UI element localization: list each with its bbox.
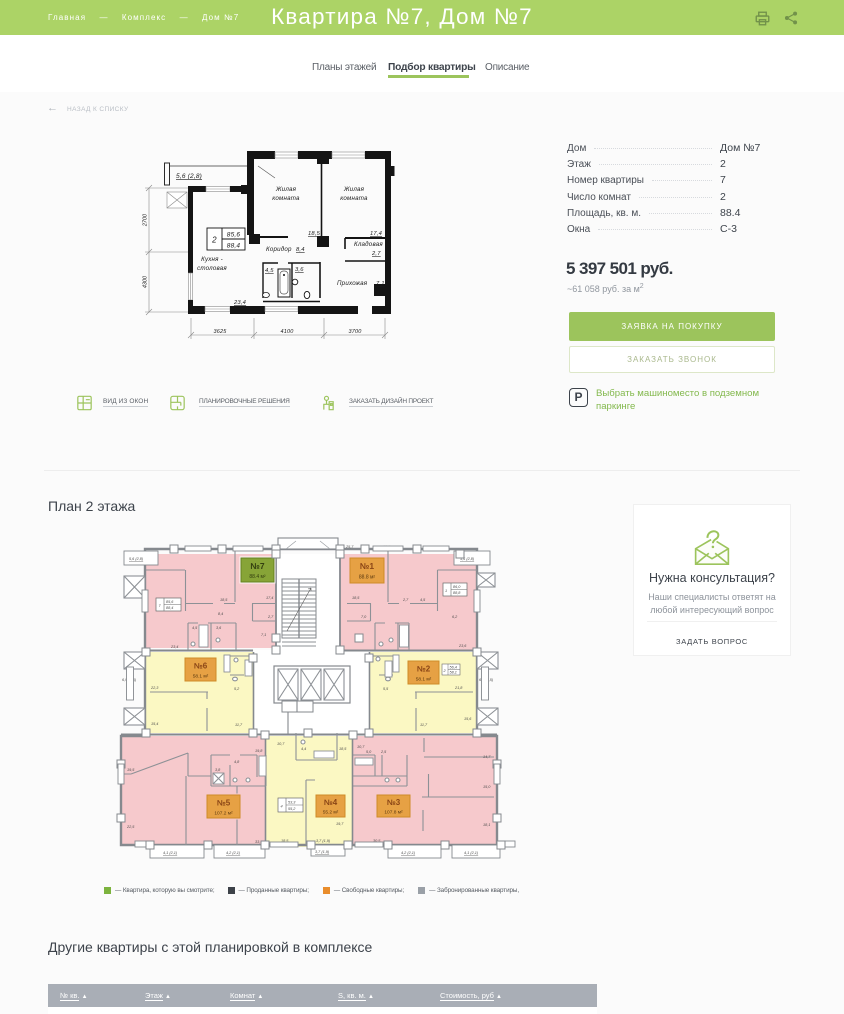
svg-text:2,7: 2,7 [267,615,274,619]
svg-text:3,6: 3,6 [216,626,222,630]
svg-text:88,8: 88,8 [453,591,461,595]
svg-text:25,7: 25,7 [345,545,354,549]
svg-text:Жилая: Жилая [275,186,297,193]
svg-text:7,0: 7,0 [361,615,367,619]
svg-text:86,0: 86,0 [453,585,461,589]
svg-text:58,1: 58,1 [450,671,457,675]
svg-text:55.2 м²: 55.2 м² [323,810,339,816]
svg-text:4,1 (2,1): 4,1 (2,1) [163,851,178,855]
svg-text:18,1: 18,1 [483,823,490,827]
svg-text:5,0: 5,0 [366,750,372,754]
svg-text:88.4 м²: 88.4 м² [249,574,266,580]
svg-text:2700: 2700 [143,213,149,227]
svg-text:№4: №4 [324,798,338,807]
svg-text:107.2 м²: 107.2 м² [214,811,233,817]
svg-text:5,6 (2,8): 5,6 (2,8) [129,557,144,561]
svg-text:4,2 (2,1): 4,2 (2,1) [401,851,416,855]
svg-text:11,7: 11,7 [420,723,428,727]
svg-text:4,2 (2,1): 4,2 (2,1) [226,851,241,855]
svg-text:№2: №2 [417,665,431,674]
svg-text:88,4: 88,4 [227,243,241,250]
svg-text:№6: №6 [194,662,208,671]
svg-text:11,7: 11,7 [235,723,243,727]
svg-text:№3: №3 [387,798,401,807]
svg-text:столовая: столовая [197,265,227,272]
svg-text:4,5: 4,5 [192,626,198,630]
svg-text:5,2: 5,2 [234,687,240,691]
svg-text:10,7: 10,7 [357,745,365,749]
svg-text:Жилая: Жилая [343,186,365,193]
svg-text:4300: 4300 [143,275,149,288]
svg-text:комната: комната [340,195,368,202]
svg-text:58.1 м²: 58.1 м² [193,674,209,680]
svg-text:14,7: 14,7 [483,755,491,759]
svg-text:8,4: 8,4 [296,247,305,253]
svg-text:Кухня -: Кухня - [201,256,223,263]
svg-text:22,5: 22,5 [126,825,135,829]
svg-text:3,7 (1,9): 3,7 (1,9) [315,850,330,854]
svg-text:4,4: 4,4 [301,747,306,751]
svg-text:5,5: 5,5 [383,687,389,691]
svg-text:19,5: 19,5 [127,768,135,772]
svg-text:4100: 4100 [280,329,294,335]
svg-text:23,6: 23,6 [458,644,467,648]
svg-text:3700: 3700 [348,329,362,335]
svg-text:3,6: 3,6 [295,267,304,273]
svg-text:№7: №7 [250,561,264,571]
svg-text:8,4: 8,4 [218,612,223,616]
svg-text:2,5: 2,5 [380,750,387,754]
svg-text:4: 4 [281,805,283,809]
svg-text:19,7: 19,7 [336,822,344,826]
svg-text:15,0: 15,0 [483,785,491,789]
svg-text:3,7 (1,9): 3,7 (1,9) [316,839,331,843]
svg-text:107.8 м²: 107.8 м² [384,810,403,816]
svg-text:55,2: 55,2 [288,807,296,811]
svg-text:85,6: 85,6 [227,232,241,239]
svg-text:4,1 (2,1): 4,1 (2,1) [464,851,479,855]
svg-text:17,4: 17,4 [370,231,382,237]
svg-text:комната: комната [272,195,300,202]
svg-text:Коридор: Коридор [266,246,292,253]
svg-text:88.8 м²: 88.8 м² [359,575,376,581]
svg-text:Прихожая: Прихожая [337,280,368,287]
svg-text:56,4: 56,4 [450,666,457,670]
svg-text:18,5: 18,5 [352,596,360,600]
svg-text:4,5: 4,5 [265,268,274,274]
svg-text:№1: №1 [360,561,374,571]
svg-text:23,4: 23,4 [233,300,246,306]
svg-text:№5: №5 [217,799,231,808]
svg-text:4,5: 4,5 [420,598,426,602]
svg-text:5,6 (2,8): 5,6 (2,8) [176,173,202,180]
svg-text:2,7: 2,7 [402,598,409,602]
svg-text:Кладовая: Кладовая [354,241,383,248]
svg-text:3625: 3625 [213,329,227,335]
svg-text:7,1: 7,1 [376,281,385,287]
svg-text:15,6: 15,6 [464,717,472,721]
svg-text:85,6: 85,6 [166,600,174,604]
svg-text:2: 2 [211,236,217,245]
svg-text:22,3: 22,3 [150,686,159,690]
svg-text:4,8: 4,8 [234,760,240,764]
svg-text:18,5: 18,5 [308,231,321,237]
svg-text:6,2: 6,2 [452,615,458,619]
svg-text:58.1 м²: 58.1 м² [416,677,432,683]
svg-text:19,8: 19,8 [255,749,263,753]
svg-text:18,5: 18,5 [339,747,347,751]
svg-text:53,3: 53,3 [288,801,296,805]
svg-text:15,4: 15,4 [151,722,158,726]
svg-text:3,8: 3,8 [215,768,221,772]
svg-text:2,7: 2,7 [371,251,381,257]
svg-text:17,4: 17,4 [266,596,273,600]
svg-text:23,4: 23,4 [170,645,178,649]
svg-text:18,5: 18,5 [220,598,228,602]
svg-text:7,1: 7,1 [261,633,266,637]
svg-text:10,7: 10,7 [277,742,285,746]
svg-text:21,8: 21,8 [454,686,463,690]
svg-text:1: 1 [445,589,447,593]
svg-text:88,4: 88,4 [166,606,173,610]
